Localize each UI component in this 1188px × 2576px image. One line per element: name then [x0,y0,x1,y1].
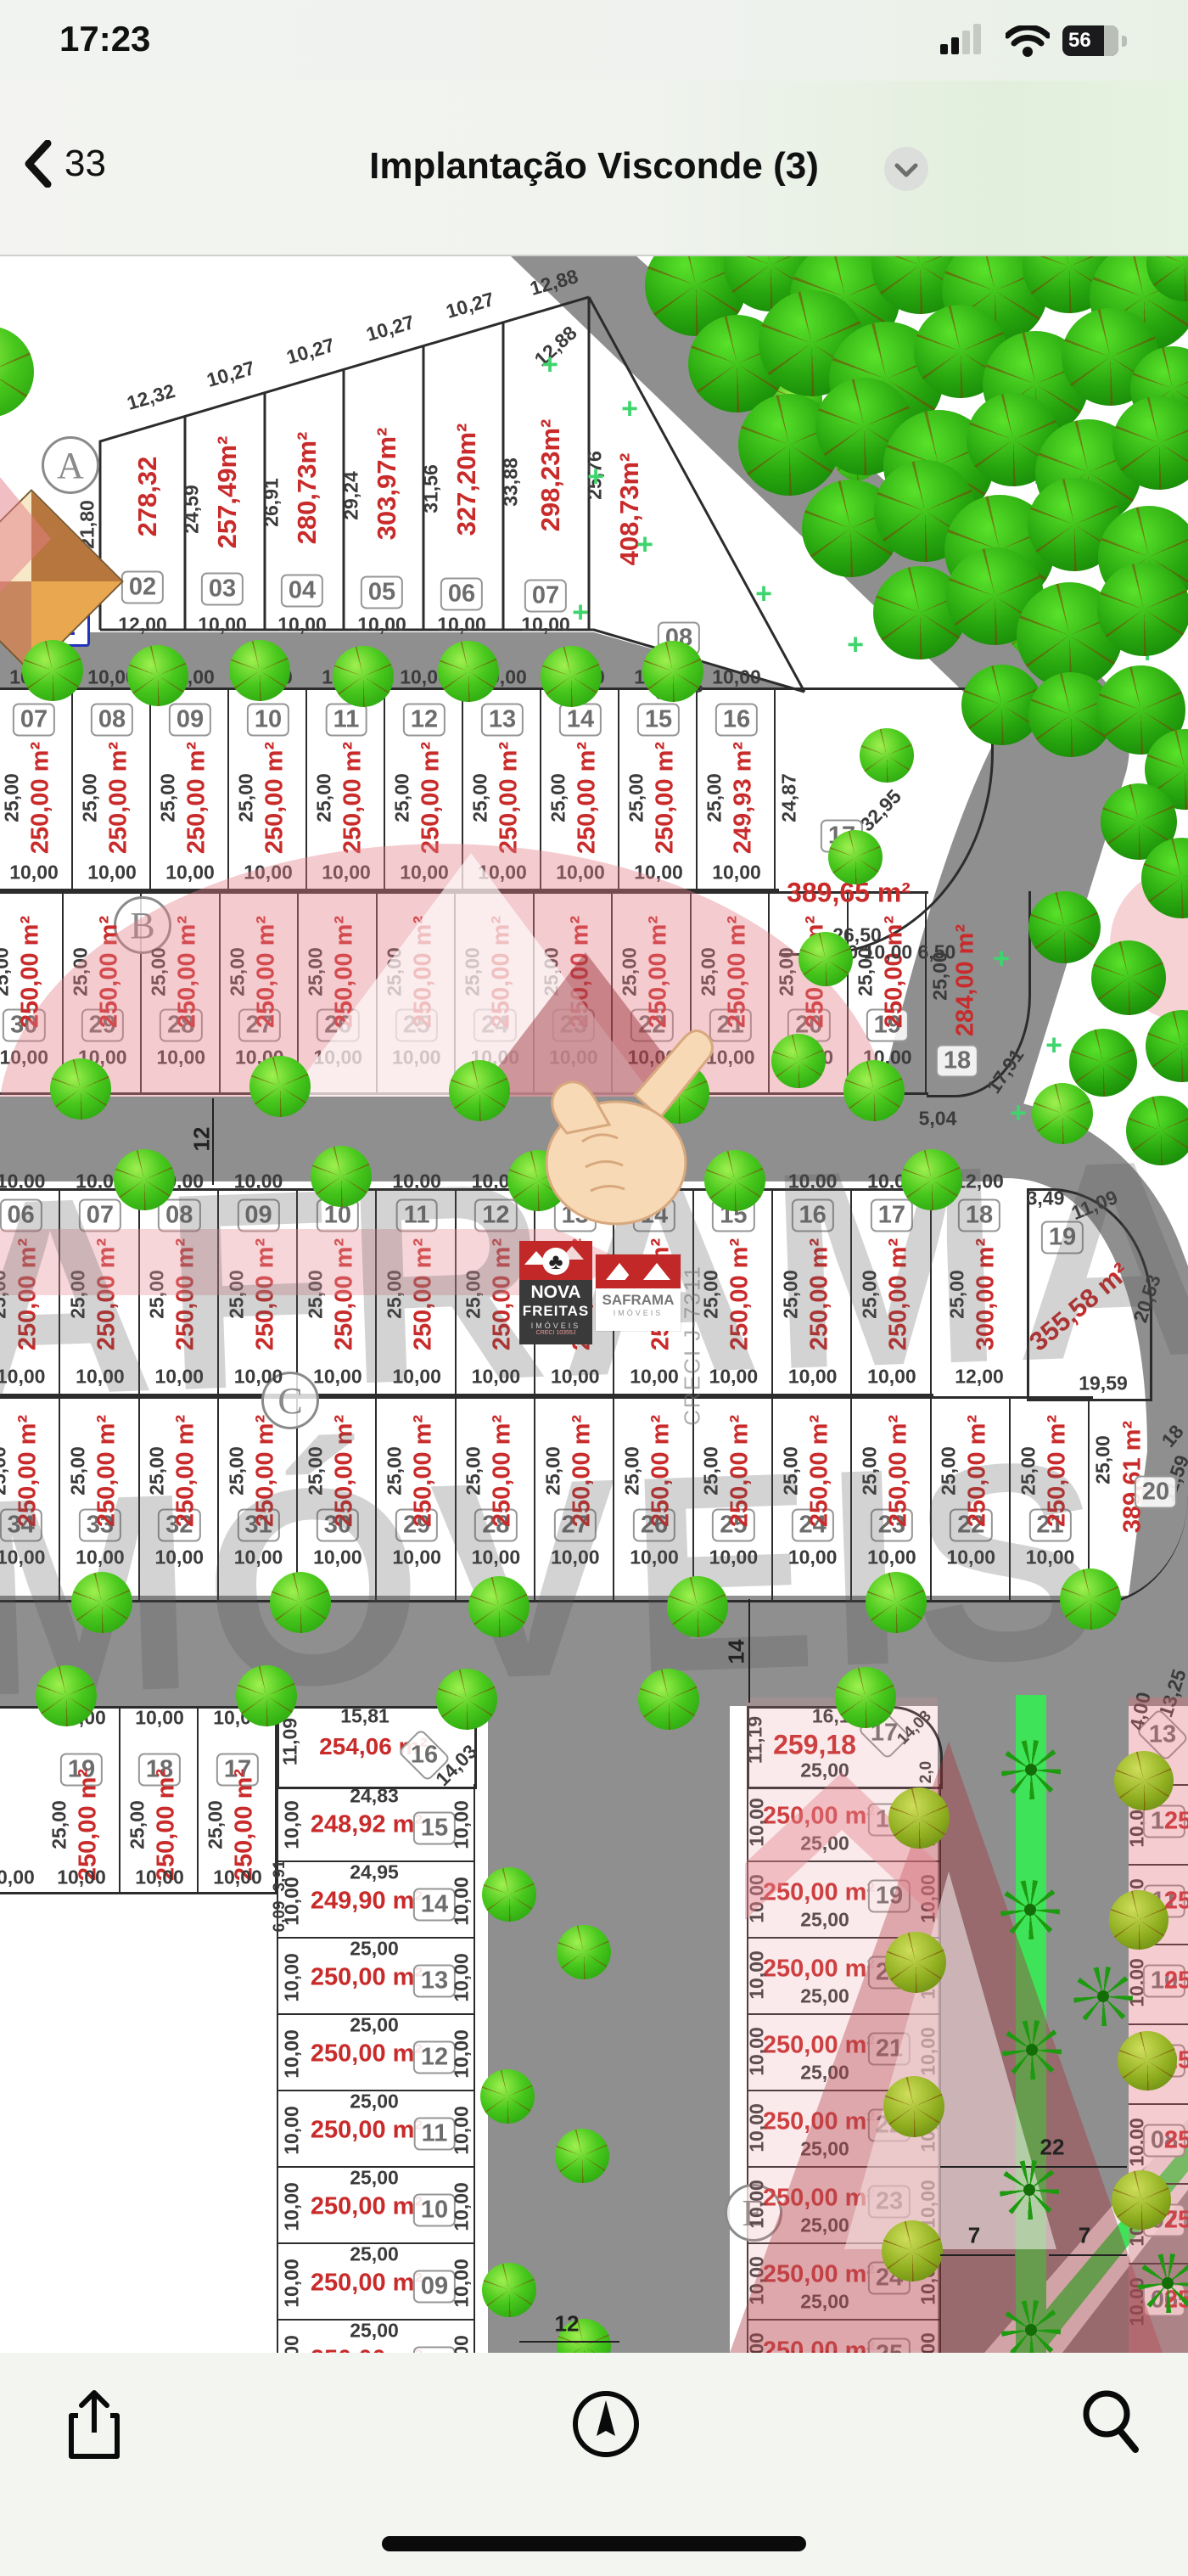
giant-watermark-text: IMÓVEIS [0,1398,1116,1764]
tree-icon [249,1056,311,1117]
tree-icon [901,1149,962,1210]
road-width-dim: 22 [1040,2135,1065,2161]
creci-watermark: CRECI J-7311 [680,1265,706,1426]
sparkle-icon: + [636,529,653,562]
tree-icon [482,1867,536,1922]
tree-icon [638,1669,699,1730]
palm-tree-icon [1002,2020,1062,2079]
palm-tree-icon [1001,1740,1061,1799]
title-dropdown-button[interactable] [884,147,928,191]
tree-icon [1112,2170,1171,2230]
sparkle-icon: + [755,578,772,611]
sparkle-icon: + [847,629,864,662]
tree-icon [236,1665,297,1726]
tree-icon [866,1572,927,1633]
tree-icon [1118,2031,1177,2091]
tree-icon [843,1060,905,1121]
bottom-toolbar [0,2353,1188,2576]
road-width-dim: 14 [724,1640,750,1664]
sparkle-icon: + [572,597,589,630]
battery-percent: 56 [1068,29,1091,53]
tree-icon [883,2076,944,2137]
sparkle-icon: + [1045,1030,1062,1063]
road-width-dim: 7 [1079,2223,1090,2249]
sparkle-icon: + [993,943,1010,976]
page-title: Implantação Visconde (3) [0,145,1188,188]
status-bar: 17:23 56 [0,0,1188,81]
tree-icon [771,1034,826,1088]
tree-icon [1126,1096,1188,1165]
tree-icon [270,1572,331,1633]
tree-icon [1069,1029,1137,1097]
tree-icon [468,1576,530,1637]
tree-icon [438,641,499,702]
tree-icon [888,1787,950,1849]
sparkle-icon: + [1010,1097,1027,1131]
battery-cap [1122,36,1127,47]
search-button[interactable] [1079,2388,1142,2456]
tree-icon [1091,940,1166,1015]
share-button[interactable] [66,2388,122,2461]
tree-icon [1032,1083,1093,1144]
road-width-dim: 12 [555,2311,580,2337]
tree-icon [555,2129,609,2183]
tree-icon [1109,1890,1168,1950]
navigation-bar: 33 Implantação Visconde (3) [0,81,1188,256]
tree-icon [436,1669,497,1730]
palm-tree-icon [1073,1967,1133,2026]
tree-icon [799,932,853,986]
tree-icon [311,1146,372,1207]
tree-icon [828,830,883,884]
tree-icon [557,1925,611,1979]
tree-icon [127,645,188,706]
home-indicator[interactable] [382,2536,806,2551]
tree-icon [835,1667,896,1728]
tree-icon [882,2220,943,2281]
chevron-down-icon [884,147,928,191]
palm-tree-icon [1001,2300,1061,2353]
tree-icon [114,1149,175,1210]
tree-icon [36,1665,97,1726]
tree-icon [1028,891,1101,963]
tree-icon [1060,1569,1121,1630]
tree-icon [667,1576,728,1637]
tree-icon [885,1932,946,1993]
battery-icon: 56 [1062,25,1118,56]
compass-markup-button[interactable] [570,2388,642,2460]
tree-icon [480,2069,535,2124]
sparkle-icon: + [541,349,558,382]
dimension-line [1049,2254,1127,2256]
tree-icon [860,728,914,783]
wifi-icon [1006,25,1050,58]
dimension-line [940,2254,1015,2256]
dimension-line [519,2341,619,2343]
nova-freitas-logo: ♣NOVAFREITASIMÓVEISCRECI 10355J [519,1241,592,1344]
tree-icon [541,646,602,707]
saframa-logo: SAFRAMAIMÓVEIS [596,1254,681,1331]
tree-icon [642,641,703,702]
tree-icon [449,1060,510,1121]
palm-tree-icon [1000,2160,1059,2220]
tree-icon [22,640,83,701]
site-plan-image[interactable]: 12,32278,3224,590212,0010,27257,49m²26,9… [0,255,1188,2353]
iphone-screen: 17:23 56 33 Implantação Visconde (3) [0,0,1188,2576]
tree-icon [229,640,290,701]
tree-icon [71,1572,132,1633]
tree-icon [482,2263,536,2317]
palm-tree-icon [1000,1880,1060,1939]
tree-icon [1097,563,1188,656]
sparkle-icon: + [621,393,638,426]
road-width-dim: 12 [189,1127,216,1152]
sparkle-icon: + [587,461,604,494]
tree-icon [50,1058,111,1120]
pointing-hand-emoji [507,1014,728,1252]
tree-icon [1114,1751,1174,1810]
road-width-dim: 7 [968,2223,980,2249]
tree-icon [333,646,394,707]
clock: 17:23 [59,19,150,59]
